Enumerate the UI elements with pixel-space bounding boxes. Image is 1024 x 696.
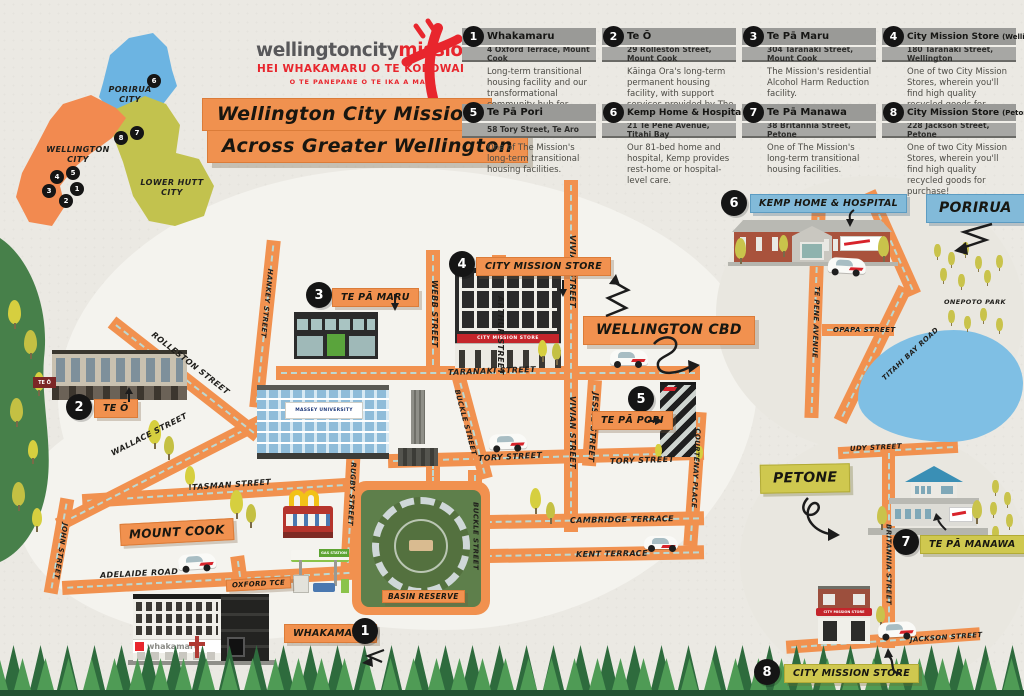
poster-title-line1: Wellington City Mission: [202, 98, 492, 131]
tree: [735, 238, 746, 259]
spiral-arrow-cbd: [648, 334, 712, 380]
street-label-buckle-lower: BUCKLE STREET: [471, 502, 479, 570]
te-pa-maru-window: [297, 336, 323, 356]
petone-store-banner-text: CITY MISSION STORE: [823, 610, 864, 614]
location-badge-4: 4: [449, 251, 475, 277]
kemp-windows: [824, 239, 838, 251]
manawa-roof: [905, 466, 963, 482]
brand-gray-text: wellingtoncity: [256, 40, 398, 61]
tree: [876, 606, 885, 623]
petone-store-banner: CITY MISSION STORE: [816, 608, 872, 616]
hook-arrow-banner4: [556, 278, 570, 298]
place-banner-basin-reserve: BASIN RESERVE: [382, 590, 465, 603]
location-badge-8: 8: [754, 659, 780, 685]
manawa-windows: [915, 486, 931, 494]
mission-car: [610, 350, 648, 365]
tree: [164, 436, 174, 455]
location-banner-te-pa-maru: TE PĀ MARU: [332, 288, 419, 307]
legend-number-badge: 2: [603, 26, 624, 47]
region-badge-7: 7: [130, 126, 144, 140]
legend-description: One of two City Mission Stores, wherein …: [882, 138, 1016, 198]
legend-name: Kemp Home & Hospital: [627, 108, 744, 118]
mission-car: [828, 257, 867, 274]
region-badge-6: 6: [147, 74, 161, 88]
tree: [877, 506, 887, 525]
legend-number-badge: 4: [883, 26, 904, 47]
place-banner-porirua: PORIRUA: [926, 194, 1024, 223]
building-te-pa-maru: [294, 312, 378, 359]
park-tree: [958, 274, 965, 287]
legend-name: City Mission Store: [907, 108, 999, 118]
tree: [12, 482, 25, 506]
gas-sign-text: GAS STATION: [321, 551, 347, 555]
legend-address: 180 Taranaki Street, Wellington: [882, 47, 1016, 62]
building-mcdonalds: [283, 490, 333, 548]
legend-address: 228 Jackson Street, Petone: [882, 123, 1016, 138]
massey-sign: MASSEY UNIVERSITY: [285, 402, 363, 419]
petone-store-window: [823, 594, 835, 605]
park-tree: [990, 502, 997, 515]
region-label-wellington: WELLINGTON CITY: [42, 145, 114, 164]
building-te-o: [52, 350, 187, 400]
region-label-lower-hutt: LOWER HUTT CITY: [138, 178, 206, 197]
gas-sign: GAS STATION: [319, 549, 349, 557]
mission-cross-icon: [398, 18, 462, 104]
legend-number-badge: 6: [603, 102, 624, 123]
legend-address: 58 Tory Street, Te Aro: [462, 123, 596, 138]
building-carillon-tower: [398, 390, 438, 466]
te-pa-maru-green-door: [327, 334, 345, 356]
legend-name: Te Pā Pori: [487, 107, 543, 118]
legend: 1Whakamaru 4 Oxford Terrace, Mount Cook …: [462, 28, 1022, 198]
tree: [546, 502, 555, 519]
street-label-cambridge: CAMBRIDGE TERRACE: [570, 515, 674, 526]
hook-arrow-petone-store: [880, 646, 906, 676]
manawa-sign-swoosh: [952, 511, 966, 516]
region-badge-4: 4: [50, 170, 64, 184]
building-kemp: [732, 220, 892, 262]
legend-item-3: 3Te Pā Maru 304 Taranaki Street, Mount C…: [742, 28, 876, 104]
location-badge-2: 2: [66, 394, 92, 420]
legend-item-4: 4City Mission Store(Wellington) 180 Tara…: [882, 28, 1016, 104]
legend-address: 21 Te Pene Avenue, Titahi Bay: [602, 123, 736, 138]
tree: [24, 330, 37, 354]
car-red-stripe: [849, 267, 863, 270]
legend-description: One of The Mission's long-term transitio…: [742, 138, 876, 176]
legend-name: City Mission Store: [907, 32, 999, 42]
park-tree: [934, 244, 941, 257]
mission-car: [489, 433, 528, 449]
region-lower-hutt-shape: [112, 96, 214, 226]
te-pa-pori-red-accent: [663, 387, 677, 391]
tree: [779, 235, 788, 252]
legend-item-2: 2Te Ō 29 Rolleston Street, Mount Cook Kā…: [602, 28, 736, 104]
manawa-window: [941, 486, 953, 494]
spiral-arrow-petone: [796, 492, 858, 546]
park-tree: [948, 310, 955, 323]
region-badge-1: 1: [70, 182, 84, 196]
te-o-street-sign: TE Ō: [33, 377, 56, 388]
store-banner-text: CITY MISSION STORE: [477, 336, 539, 341]
kemp-sign: [840, 236, 882, 251]
petone-store-door: [851, 621, 865, 641]
region-badge-2: 2: [59, 194, 73, 208]
legend-description: The Mission's residential Alcohol Harm R…: [742, 62, 876, 100]
tree: [552, 343, 561, 360]
legend-description: Our 81-bed home and hospital, Kemp provi…: [602, 138, 736, 187]
location-badge-7: 7: [893, 529, 919, 555]
legend-name: Whakamaru: [487, 31, 555, 42]
legend-item-8: 8City Mission Store(Petone) 228 Jackson …: [882, 104, 1016, 198]
basin-reserve-pitch: [409, 540, 433, 551]
hook-arrow-banner2: [122, 386, 136, 404]
building-gas-station: GAS STATION: [291, 550, 349, 595]
legend-number-badge: 8: [883, 102, 904, 123]
location-badge-1: 1: [352, 618, 378, 644]
building-city-mission-store-petone: CITY MISSION STORE: [818, 586, 870, 644]
location-badge-5: 5: [628, 386, 654, 412]
location-banner-city-mission-store-wellington: CITY MISSION STORE: [476, 257, 611, 276]
legend-item-7: 7Te Pā Manawa 38 Britannia Street, Peton…: [742, 104, 876, 198]
te-o-windows: [56, 358, 183, 382]
mission-car: [644, 536, 678, 549]
te-o-sign-text: TE Ō: [38, 380, 51, 386]
zigzag-arrow-porirua: [946, 220, 998, 262]
tree: [8, 300, 21, 324]
hook-arrow-banner7: [930, 512, 950, 532]
carillon-shaft: [411, 390, 425, 444]
legend-address: 29 Rolleston Street, Mount Cook: [602, 47, 736, 62]
street-label-arthur: ARTHUR STREET: [495, 296, 504, 375]
car-red-stripe: [631, 359, 645, 362]
park-tree: [940, 268, 947, 281]
gas-car: [313, 583, 335, 592]
location-badge-6: 6: [721, 190, 747, 216]
legend-name: Te Pā Maru: [767, 31, 829, 42]
legend-number-badge: 5: [463, 102, 484, 123]
manawa-windows: [895, 509, 935, 519]
gas-pillar: [334, 560, 337, 586]
legend-number-badge: 3: [743, 26, 764, 47]
store-window-grid: [459, 273, 557, 331]
car-red-stripe: [900, 630, 914, 633]
gas-pump: [341, 579, 349, 593]
tree: [10, 398, 23, 422]
park-tree: [964, 316, 971, 329]
region-badge-5: 5: [66, 166, 80, 180]
te-pa-maru-window: [349, 336, 375, 356]
gas-kiosk: [293, 575, 309, 593]
region-badge-8: 8: [114, 131, 128, 145]
mission-car: [178, 553, 217, 571]
tree: [246, 504, 256, 523]
legend-number-badge: 7: [743, 102, 764, 123]
manawa-sign: [949, 507, 973, 522]
location-banner-kemp: KEMP HOME & HOSPITAL: [750, 194, 907, 213]
legend-address: 304 Taranaki Street, Mount Cook: [742, 47, 876, 62]
park-tree: [984, 270, 991, 283]
poster-canvas: PORIRUA CITY WELLINGTON CITY LOWER HUTT …: [0, 0, 1024, 696]
legend-item-6: 6Kemp Home & Hospital 21 Te Pene Avenue,…: [602, 104, 736, 198]
legend-address: 4 Oxford Terrace, Mount Cook: [462, 47, 596, 62]
legend-address: 38 Britannia Street, Petone: [742, 123, 876, 138]
car-red-stripe: [200, 562, 214, 565]
tree: [230, 490, 243, 514]
zigzag-arrow-to-cbd: [598, 272, 634, 318]
location-banner-te-pa-manawa: TE PĀ MANAWA: [920, 535, 1024, 554]
legend-suffix: (Wellington): [1002, 33, 1024, 41]
street-label-webb: WEBB STREET: [429, 280, 438, 347]
legend-description: One of The Mission's long-term transitio…: [462, 138, 596, 176]
legend-suffix: (Petone): [1002, 109, 1024, 117]
hook-arrow-banner5: [646, 414, 664, 428]
park-tree: [996, 318, 1003, 331]
park-tree: [1004, 492, 1011, 505]
hook-arrow-banner6: [842, 208, 858, 228]
tree: [28, 440, 38, 459]
legend-name: Te Pā Manawa: [767, 107, 847, 118]
legend-item-1: 1Whakamaru 4 Oxford Terrace, Mount Cook …: [462, 28, 596, 104]
tree: [878, 236, 889, 257]
legend-number-badge: 1: [463, 26, 484, 47]
te-pa-maru-upper-glass: [297, 319, 375, 330]
tree: [530, 488, 541, 509]
street-vivian: [564, 180, 578, 532]
building-massey-university: MASSEY UNIVERSITY: [257, 385, 389, 459]
whakamaru-windows: [136, 601, 218, 635]
mcdonalds-windows: [286, 514, 330, 526]
location-badge-3: 3: [306, 282, 332, 308]
street-label-kent: KENT TERRACE: [576, 550, 648, 560]
street-label-opapa: OPAPA STREET: [833, 327, 896, 335]
tree: [538, 340, 547, 357]
petone-store-upper: [818, 586, 870, 608]
carillon-base: [398, 448, 438, 466]
park-tree: [1006, 514, 1013, 527]
petone-store-lower: [818, 618, 870, 644]
petone-store-window: [853, 594, 865, 605]
tree: [32, 508, 42, 527]
manawa-upper-storey: [911, 482, 957, 498]
street-label-te-pene: TE PENE AVENUE: [810, 286, 820, 358]
kemp-sign-swoosh: [844, 239, 870, 246]
legend-name: Te Ō: [627, 31, 651, 42]
massey-sign-text: MASSEY UNIVERSITY: [295, 408, 353, 413]
mcdonalds-base: [283, 532, 333, 538]
hook-arrow-banner3: [388, 292, 402, 312]
kemp-body: [734, 232, 890, 262]
place-label-onepoto-park: ONEPOTO PARK: [944, 299, 1006, 306]
park-tree: [992, 480, 999, 493]
place-banner-petone: PETONE: [760, 463, 851, 493]
tree: [972, 500, 982, 519]
kemp-ground: [728, 262, 898, 266]
kemp-door: [800, 242, 824, 260]
region-badge-3: 3: [42, 184, 56, 198]
car-red-stripe: [661, 545, 675, 548]
petone-store-door: [823, 621, 837, 641]
park-tree: [980, 308, 987, 321]
street-label-britannia: BRITANNIA STREET: [884, 524, 892, 605]
street-label-vivian-lower: VIVIAN STREET: [567, 396, 576, 469]
hook-arrow-whakamaru: [356, 646, 386, 670]
car-red-stripe: [510, 442, 524, 445]
